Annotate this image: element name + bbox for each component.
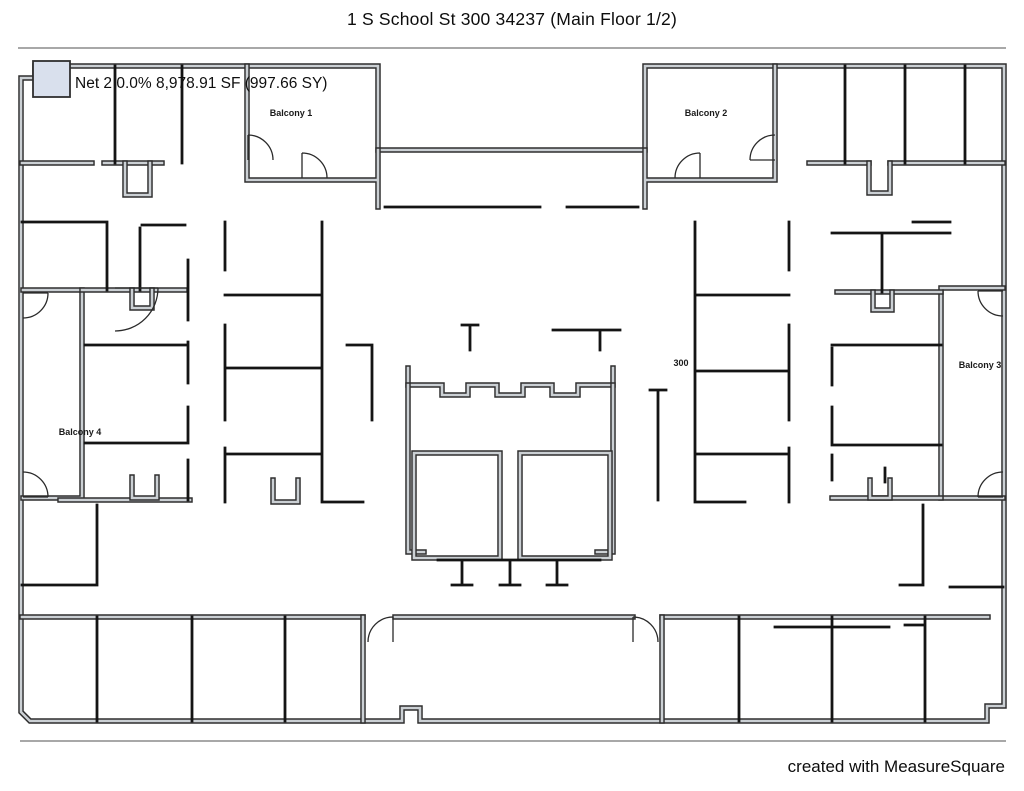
door-arcs bbox=[23, 135, 1003, 642]
exterior-walls bbox=[21, 66, 1004, 721]
unit-number-label: 300 bbox=[673, 358, 688, 368]
floor-plan-canvas: Net 2 0.0% 8,978.91 SF (997.66 SY) Balco… bbox=[0, 0, 1024, 791]
balcony2-label: Balcony 2 bbox=[685, 108, 728, 118]
measuresquare-credit: created with MeasureSquare bbox=[788, 757, 1005, 777]
balcony3-label: Balcony 3 bbox=[959, 360, 1002, 370]
bottom-divider bbox=[20, 740, 1006, 742]
balcony4-label: Balcony 4 bbox=[59, 427, 102, 437]
net-area-label: Net 2 0.0% 8,978.91 SF (997.66 SY) bbox=[75, 75, 327, 92]
balcony1-label: Balcony 1 bbox=[270, 108, 313, 118]
area-legend-swatch bbox=[33, 61, 70, 97]
